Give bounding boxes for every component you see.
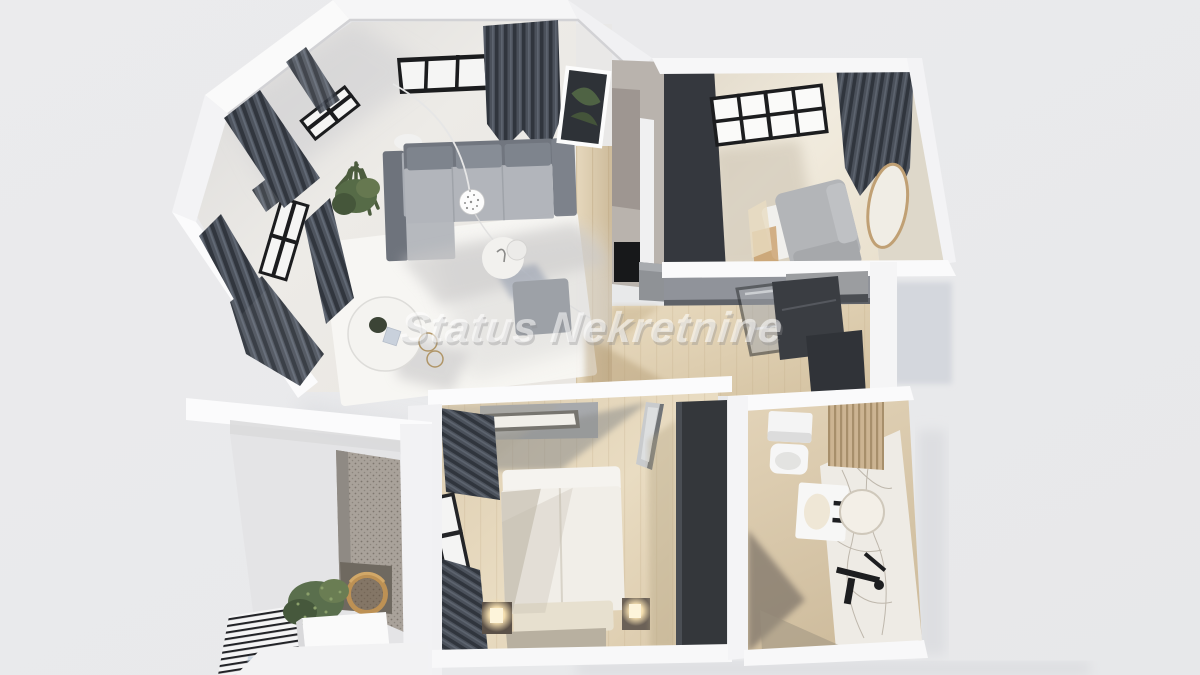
svg-text:Status Nekretnine: Status Nekretnine	[398, 304, 786, 352]
